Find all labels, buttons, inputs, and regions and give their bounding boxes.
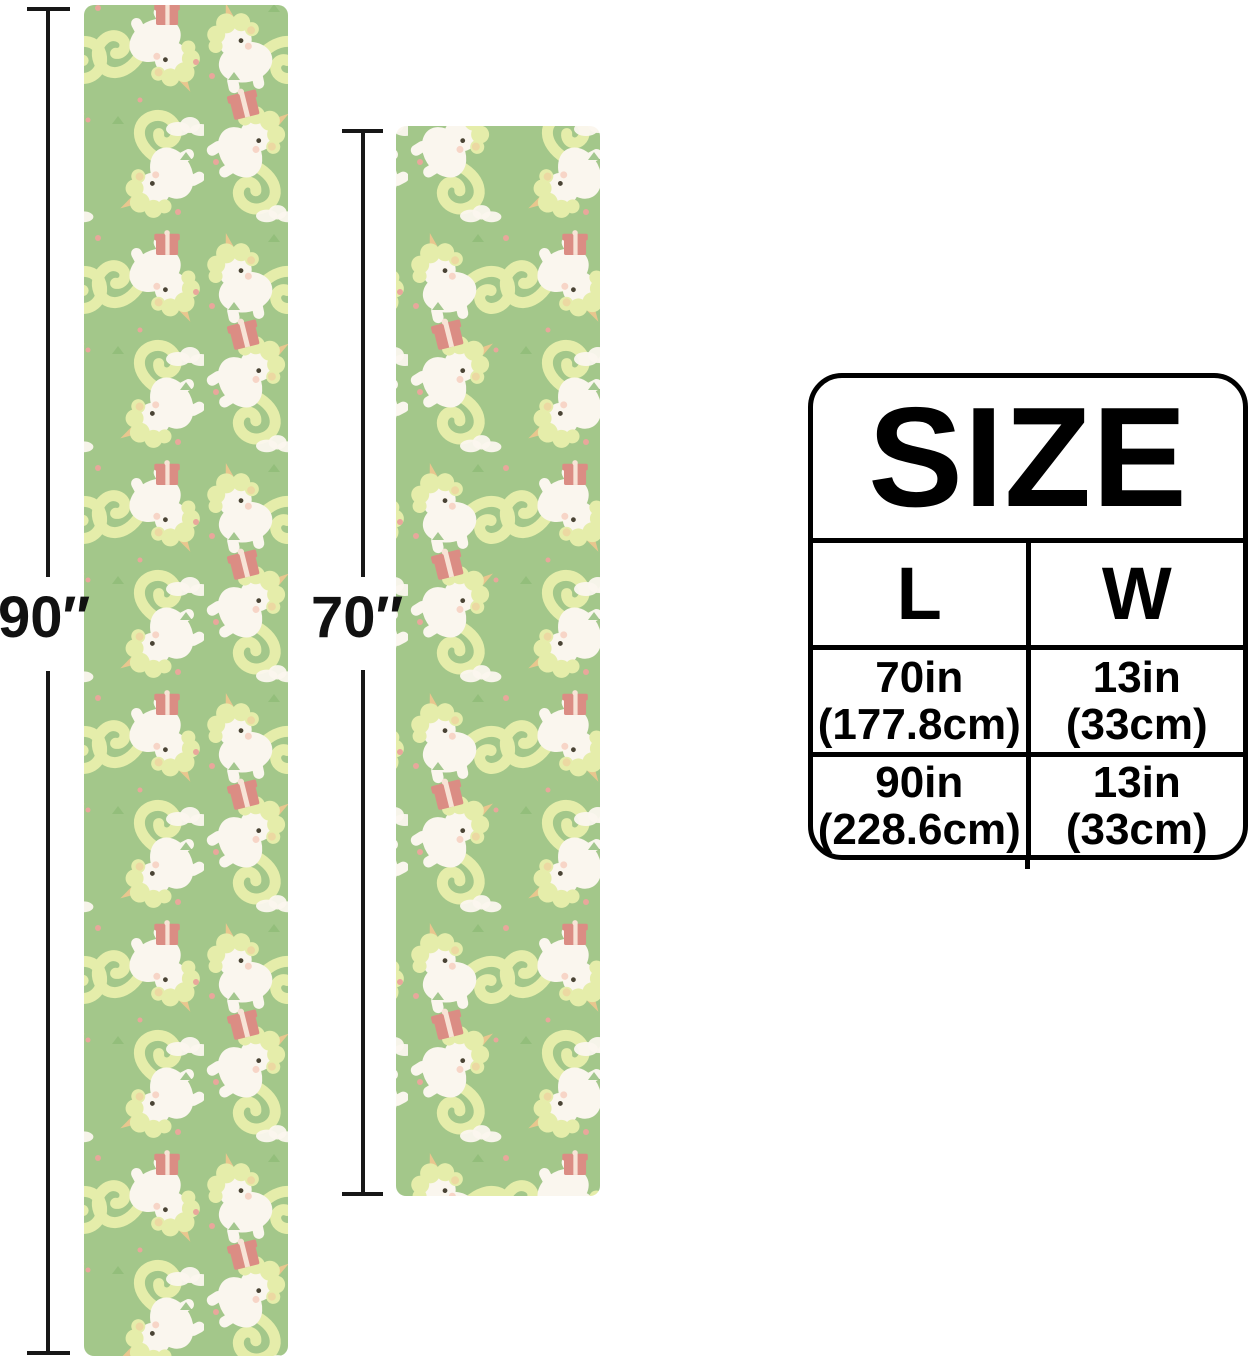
- cell-90-width: 13in (33cm): [1031, 757, 1244, 855]
- dimension-90-label: 90″: [0, 589, 82, 647]
- dimension-70-label: 70″: [311, 589, 395, 647]
- cell-90-width-cm: (33cm): [1066, 806, 1208, 853]
- size-table: SIZE L W 70in (177.8cm) 13in (33cm) 90in…: [808, 373, 1248, 860]
- cell-70-width-in: 13in: [1093, 654, 1181, 701]
- dimension-90-line-upper: [46, 9, 50, 577]
- cell-70-length-in: 70in: [875, 654, 963, 701]
- size-table-header-row: L W: [813, 543, 1243, 650]
- dimension-70-line-upper: [361, 131, 365, 577]
- col-header-L-text: L: [897, 557, 942, 631]
- cell-90-width-in: 13in: [1093, 759, 1181, 806]
- cell-70-width-cm: (33cm): [1066, 701, 1208, 748]
- cell-70-length: 70in (177.8cm): [813, 650, 1031, 752]
- dimension-90-bottom-cap: [27, 1351, 70, 1355]
- size-table-row-70: 70in (177.8cm) 13in (33cm): [813, 650, 1243, 757]
- cell-70-length-cm: (177.8cm): [818, 701, 1021, 748]
- size-table-title: SIZE: [813, 378, 1243, 543]
- size-col-header-L: L: [813, 543, 1031, 645]
- size-table-row-90: 90in (228.6cm) 13in (33cm): [813, 757, 1243, 855]
- cell-90-length: 90in (228.6cm): [813, 757, 1031, 855]
- cell-90-length-in: 90in: [875, 759, 963, 806]
- cell-70-width: 13in (33cm): [1031, 650, 1244, 752]
- product-size-diagram: 90″ 70″ SIZE L W 70in (177.8cm) 13in: [0, 0, 1258, 1363]
- dimension-90-line-lower: [46, 671, 50, 1351]
- size-col-header-W: W: [1031, 543, 1244, 645]
- col-header-W-text: W: [1102, 557, 1172, 631]
- runner-90in-swatch: [84, 5, 288, 1356]
- dimension-70-line-lower: [361, 670, 365, 1192]
- dimension-70-bottom-cap: [342, 1192, 383, 1196]
- cell-90-length-cm: (228.6cm): [818, 806, 1021, 853]
- size-table-divider-tail: [1025, 855, 1030, 869]
- runner-70in-swatch: [396, 126, 600, 1196]
